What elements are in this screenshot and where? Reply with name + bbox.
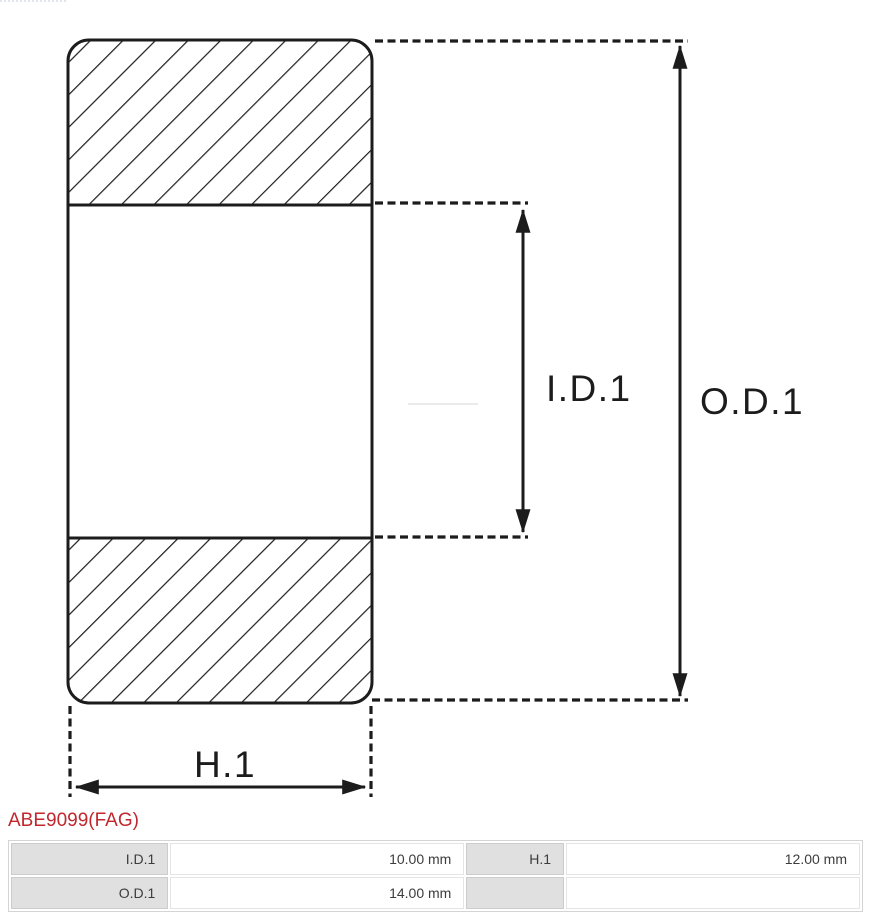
bearing-cross-section-diagram: I.D.1 O.D.1 H.1 [0, 0, 871, 808]
id1-label: I.D.1 [546, 368, 632, 409]
spec-table-row: I.D.1 10.00 mm H.1 12.00 mm [11, 843, 860, 875]
spec-label-od1: O.D.1 [11, 877, 168, 909]
spec-label-id1: I.D.1 [11, 843, 168, 875]
spec-label-h1: H.1 [466, 843, 564, 875]
spec-value-id1: 10.00 mm [170, 843, 464, 875]
spec-value-empty [566, 877, 860, 909]
bearing-hatched-sections [68, 40, 372, 703]
bottom-hatch-band [68, 538, 372, 703]
h1-label: H.1 [194, 744, 256, 785]
spec-value-h1: 12.00 mm [566, 843, 860, 875]
product-drawing-page: I.D.1 O.D.1 H.1 ABE9099(FAG) I.D.1 10.00… [0, 0, 871, 913]
od1-label: O.D.1 [700, 381, 804, 422]
spec-table-row: O.D.1 14.00 mm [11, 877, 860, 909]
spec-table: I.D.1 10.00 mm H.1 12.00 mm O.D.1 14.00 … [8, 840, 863, 912]
spec-label-empty [466, 877, 564, 909]
top-hatch-band [68, 40, 372, 205]
spec-value-od1: 14.00 mm [170, 877, 464, 909]
product-code-link[interactable]: ABE9099(FAG) [8, 809, 139, 833]
